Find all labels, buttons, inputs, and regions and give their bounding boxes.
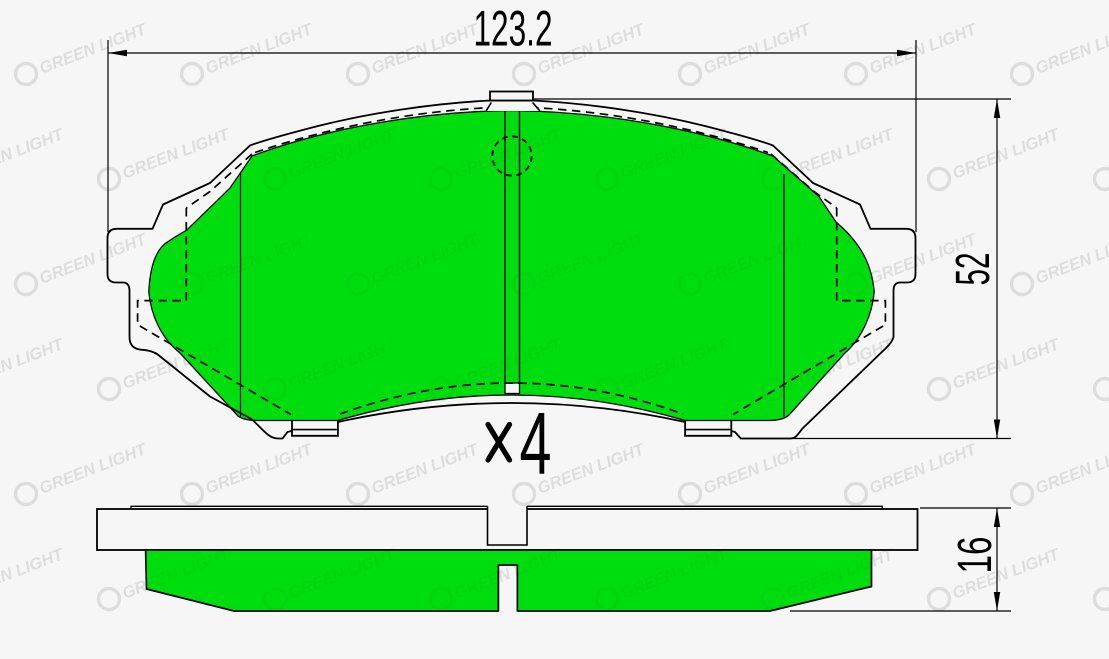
- svg-text:16: 16: [948, 537, 1002, 574]
- svg-text:52: 52: [946, 253, 1000, 286]
- svg-text:123.2: 123.2: [474, 0, 553, 57]
